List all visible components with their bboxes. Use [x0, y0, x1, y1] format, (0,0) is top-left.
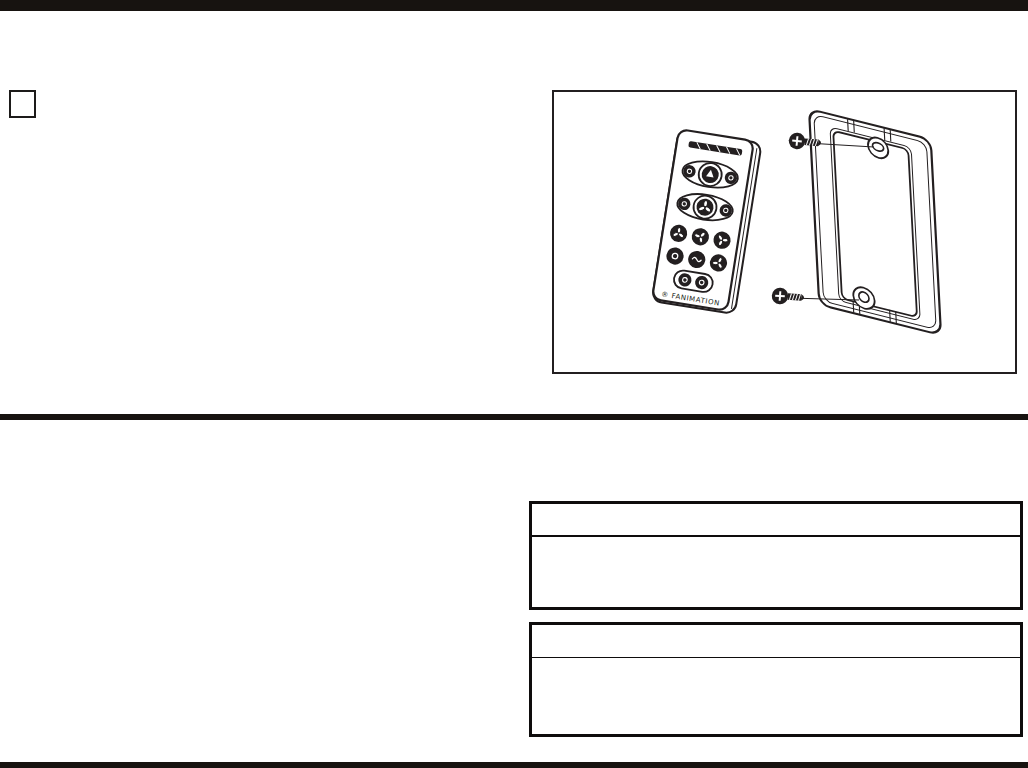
note-panel-2 — [529, 622, 1023, 737]
mounting-screw-bottom — [771, 287, 804, 306]
note-panel-1 — [529, 501, 1023, 610]
cradle-recess — [833, 131, 917, 317]
panel-1-header — [532, 504, 1020, 537]
remote-and-cradle-illustration: ® FANIMATION — [554, 92, 1015, 372]
wall-cradle-plate — [809, 109, 941, 335]
page-top-rule — [0, 0, 1028, 11]
panel-2-header — [532, 625, 1020, 658]
panel-1-body — [532, 537, 1020, 549]
section-divider-rule — [0, 414, 1028, 420]
step-number-box — [9, 90, 36, 118]
page-bottom-rule — [0, 762, 1028, 768]
remote-control: ® FANIMATION — [652, 129, 762, 314]
illustration-frame: ® FANIMATION — [552, 90, 1017, 374]
manual-page: { "document": { "kind": "scanned instruc… — [0, 0, 1028, 768]
panel-2-body — [532, 658, 1020, 670]
